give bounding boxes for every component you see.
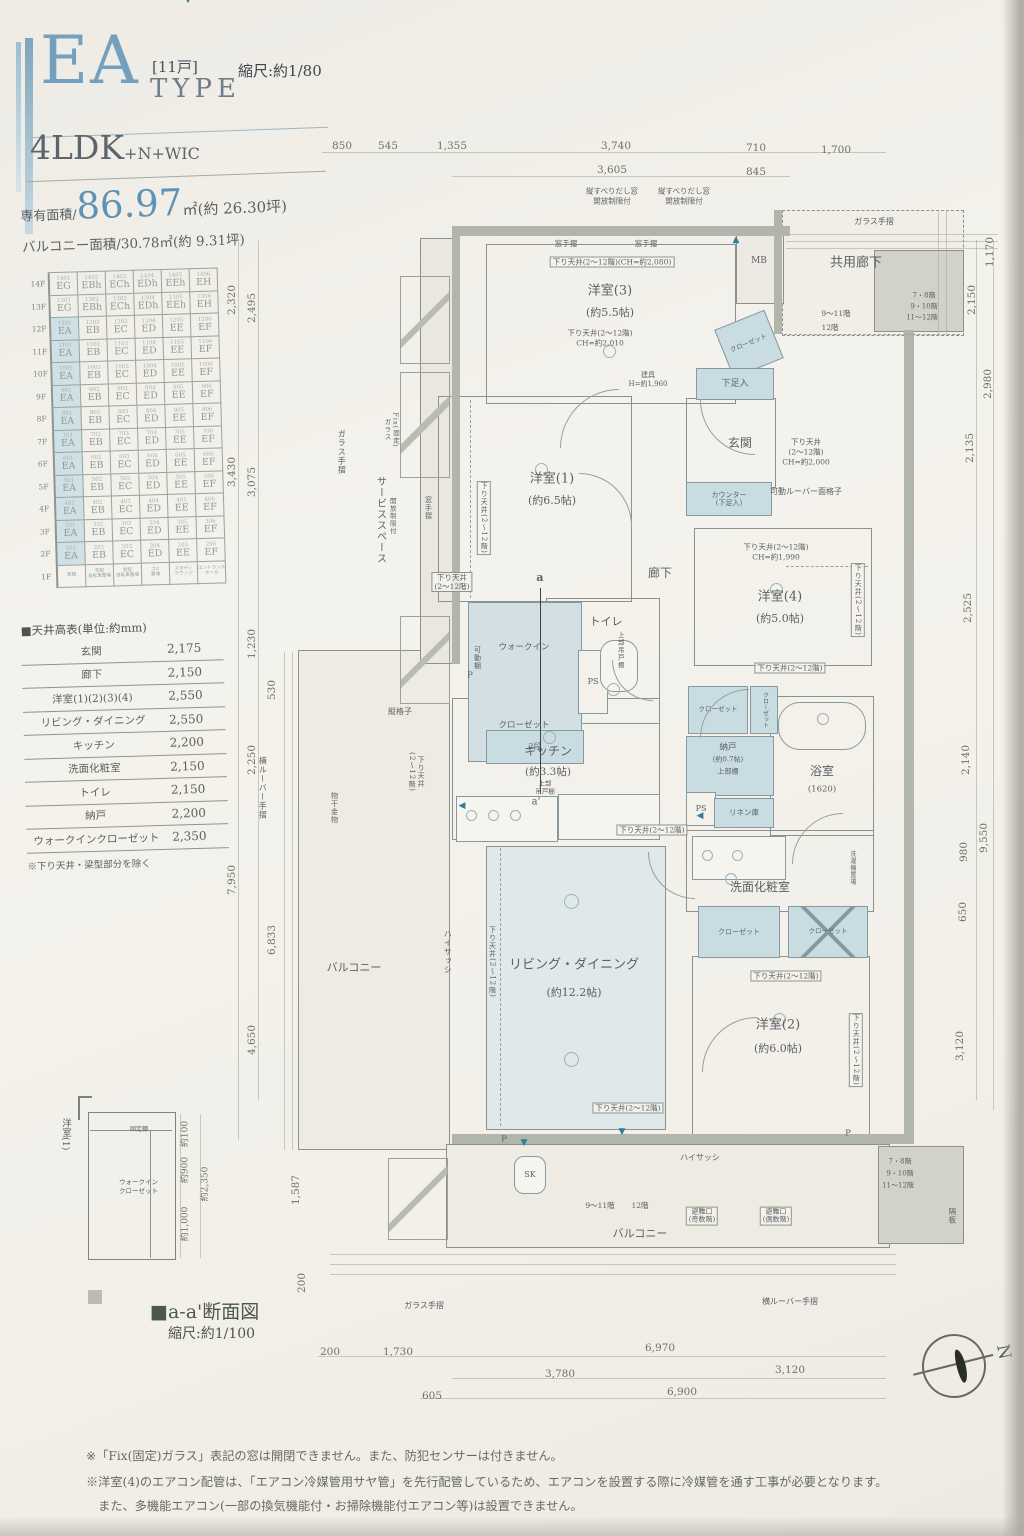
- plan-label: 9〜11階: [585, 1201, 614, 1211]
- plan-fixture: [778, 702, 866, 750]
- plan-label: 下り天井 (2〜12階) CH=約2,000: [782, 437, 830, 466]
- plan-label: キッチン: [524, 744, 572, 760]
- plan-label: ハイサッシ: [442, 930, 452, 975]
- page-edge-shadow: [0, 1516, 1024, 1536]
- plan-fixture: リネン庫: [714, 798, 774, 828]
- dimension-label: 3,430: [226, 457, 238, 487]
- section-line: [540, 588, 541, 794]
- hatched-box: [400, 372, 450, 478]
- dimension-label: 2,150: [966, 285, 978, 315]
- plan-label: P: [467, 670, 473, 681]
- dimension-line: [258, 240, 259, 1100]
- dimension-label: 2,525: [962, 593, 974, 623]
- plan-label: 洋室(2): [756, 1018, 800, 1035]
- section-dim-line: [180, 1114, 181, 1258]
- section-caption: ■a-a'断面図: [150, 1297, 259, 1324]
- plan-label: 避難口 (奇数階): [686, 1207, 718, 1226]
- plan-label: 窓手摺: [555, 239, 578, 249]
- downlight-circle: [543, 731, 556, 744]
- plan-label: 洋室(3): [588, 284, 632, 301]
- dropped-ceiling-line: [500, 848, 501, 1126]
- downlight-circle: [488, 810, 499, 821]
- plan-label: 縦格子: [388, 707, 412, 717]
- plan-label: リビング・ダイニング: [509, 958, 639, 975]
- section-caption-square: [88, 1290, 102, 1304]
- hatched-box: [388, 1158, 448, 1240]
- plan-label: ガラス手摺: [854, 217, 894, 227]
- dimension-label: 1,730: [383, 1346, 413, 1358]
- plan-label: 開放制限付: [388, 497, 396, 535]
- plan-label: ハイサッシ: [680, 1153, 720, 1163]
- plan-label: 7・8階: [913, 291, 936, 300]
- plan-label: 縦すべりだし窓 開放制限付: [658, 186, 710, 206]
- dimension-label: 1,230: [246, 629, 258, 659]
- dimension-line: [938, 210, 939, 336]
- section-shelf-label: 固定棚: [130, 1124, 148, 1133]
- dimension-label: 200: [320, 1346, 340, 1358]
- downlight-circle: [607, 683, 620, 696]
- utility-marker: ▼: [185, 0, 192, 5]
- hatched-box: [400, 276, 450, 364]
- plan-label: 上部 吊戸棚: [535, 780, 555, 797]
- dimension-label: 845: [746, 166, 766, 178]
- dimension-label: 3,120: [954, 1031, 966, 1061]
- footnote-1: ※「Fix(固定)ガラス」表記の窓は開閉できません。また、防犯センサーは付きませ…: [86, 1446, 563, 1464]
- dimension-label: 850: [332, 140, 352, 152]
- utility-marker: ▼: [521, 1138, 528, 1148]
- section-room-label: 洋室(1): [58, 1118, 72, 1150]
- downlight-circle: [564, 1052, 579, 1067]
- plan-label: 洗濯機置場: [848, 851, 856, 886]
- plan-label: 下り天井(2〜12階): [851, 563, 865, 637]
- utility-marker: ◀: [459, 801, 466, 811]
- dimension-line: [284, 652, 285, 1150]
- downlight-circle: [564, 894, 579, 909]
- plan-fixture: クローゼット: [788, 906, 868, 958]
- plan-wall: [904, 330, 914, 1144]
- plan-label: 下り天井(2〜12階)(CH=約2,080): [550, 257, 675, 268]
- plan-label: 9・10階: [910, 302, 937, 311]
- dimension-label: 2,320: [226, 285, 238, 315]
- plan-fixture: 下足入: [696, 368, 774, 400]
- plan-label: (約12.2帖): [546, 986, 601, 1000]
- plan-label: P: [501, 1134, 507, 1145]
- section-dim-line: [200, 1114, 201, 1258]
- dimension-line: [976, 240, 977, 1100]
- plan-wall: [774, 210, 782, 334]
- plan-label: 下り天井(2〜12階): [750, 971, 821, 982]
- dimension-label: 6,900: [667, 1386, 697, 1398]
- dimension-label: 3,075: [246, 467, 258, 497]
- plan-room: [298, 650, 450, 1150]
- plan-fixture: クローゼット: [698, 906, 780, 958]
- plan-label: バルコニー: [613, 1227, 668, 1241]
- plan-label: 窓手摺: [423, 496, 432, 520]
- footnote-2: ※洋室(4)のエアコン配管は、「エアコン冷媒管用サヤ管」を先行配管しているため、…: [86, 1472, 887, 1490]
- plan-label: (約5.5帖): [586, 306, 634, 320]
- dimension-line: [330, 1274, 896, 1275]
- dimension-line: [786, 241, 998, 242]
- plan-label: 下り天井(2〜12階): [487, 926, 496, 998]
- plan-wall: [452, 226, 460, 664]
- plan-label: ウォークイン: [498, 642, 549, 653]
- dimension-line: [330, 1264, 896, 1265]
- downlight-circle: [510, 810, 521, 821]
- plan-label: 7・8階: [889, 1157, 912, 1166]
- dimension-label: 200: [296, 1273, 308, 1293]
- plan-label: a: [536, 571, 543, 585]
- plan-label: 上部棚: [718, 767, 739, 776]
- dimension-label: 6,833: [266, 925, 278, 955]
- dimension-label: 3,780: [545, 1368, 575, 1380]
- dimension-label: 2,495: [246, 293, 258, 323]
- plan-label: 上部吊戸棚: [616, 631, 624, 669]
- plan-label: 下り天井(2〜12階): [592, 1103, 663, 1114]
- plan-label: 下り天井 (2〜12階): [407, 752, 425, 792]
- plan-label: (約5.0帖): [756, 612, 804, 626]
- plan-label: 9〜11階: [821, 309, 850, 319]
- plan-label: 下り天井(2〜12階): [477, 481, 491, 555]
- dimension-label: 7,950: [226, 865, 238, 895]
- dimension-label: 545: [378, 140, 398, 152]
- plan-label: 隔板: [947, 1208, 957, 1225]
- plan-label: ガラス手摺: [336, 430, 346, 475]
- dimension-line: [322, 152, 886, 153]
- dimension-label: 2,250: [246, 745, 258, 775]
- plan-label: 下り天井(2〜12階) CH=約2,010: [567, 328, 632, 348]
- plan-label: 玄関: [728, 436, 752, 452]
- dimension-line: [786, 248, 998, 249]
- plan-label: (1620): [808, 784, 836, 795]
- plan-label: 廊下: [648, 566, 672, 582]
- plan-label: (約0.7帖): [713, 755, 744, 764]
- section-wic-label: ウォークイン クローゼット: [119, 1178, 158, 1196]
- plan-label: P: [845, 1128, 851, 1139]
- dimension-label: 710: [746, 142, 766, 154]
- downlight-circle: [732, 850, 743, 861]
- dimension-label: 530: [266, 680, 278, 700]
- dropped-ceiling-line: [784, 334, 960, 335]
- dimension-line: [946, 210, 947, 336]
- dimension-label: 650: [957, 902, 969, 922]
- plan-label: トイレ: [590, 615, 623, 629]
- plan-label: 下り天井(2〜12階): [849, 1013, 863, 1087]
- hatched-box: [400, 616, 450, 704]
- plan-label: 納戸: [719, 742, 736, 753]
- plan-label: 11〜12階: [882, 1181, 914, 1190]
- plan-label: 横ルーバー手摺: [762, 1297, 818, 1307]
- dimension-label: 3,740: [601, 140, 631, 152]
- plan-fixture: SK: [514, 1156, 546, 1194]
- dimension-label: 6,970: [645, 1342, 675, 1354]
- plan-label: (約6.0帖): [754, 1042, 802, 1056]
- dimension-label: 980: [958, 842, 970, 862]
- plan-fixture: カウンター (下足入): [686, 482, 772, 516]
- plan-label: 可動棚: [472, 646, 481, 670]
- plan-label: 9・10階: [886, 1169, 913, 1178]
- plan-label: サービススペース: [374, 476, 387, 564]
- plan-label: バルコニー: [327, 961, 382, 975]
- dimension-label: 1,355: [437, 140, 467, 152]
- page-edge-shadow: [1002, 0, 1024, 1536]
- dimension-line: [420, 1398, 886, 1399]
- footnote-3: また、多機能エアコン(一部の換気機能付・お掃除機能付エアコン等)は設置できません…: [86, 1496, 583, 1514]
- plan-label: 12階: [631, 1201, 648, 1211]
- plan-label: 12階: [821, 323, 838, 333]
- dimension-line: [452, 1378, 886, 1379]
- utility-marker: ◀: [697, 811, 704, 821]
- compass-needle: [913, 1354, 993, 1376]
- plan-label: 建具 H=約1,960: [628, 371, 667, 389]
- plan-label: 可動ルーバー面格子: [770, 487, 842, 497]
- dimension-line: [786, 234, 998, 235]
- plan-fixture: クローゼット: [750, 686, 778, 734]
- dimension-label: 1,587: [290, 1175, 302, 1205]
- plan-label: 浴室: [810, 764, 834, 780]
- dimension-label: 2,980: [982, 369, 994, 399]
- downlight-circle: [466, 810, 477, 821]
- utility-marker: ▼: [619, 1127, 626, 1137]
- plan-label: 避難口 (偶数階): [760, 1207, 792, 1226]
- plan-label: ガラス手摺: [404, 1301, 444, 1311]
- dimension-line: [292, 652, 293, 1150]
- plan-label: MB: [751, 256, 767, 268]
- dimension-label: 1,700: [821, 144, 851, 156]
- plan-label: 縦すべりだし窓 開放制限付: [586, 186, 638, 206]
- plan-label: Fix(固定) ガラス: [383, 412, 400, 447]
- dimension-label: 605: [422, 1390, 442, 1402]
- plan-label: 横ルーバー手摺: [257, 757, 267, 820]
- dimension-line: [238, 240, 239, 1140]
- plan-label: クローゼット: [498, 720, 549, 731]
- compass-pointer: [953, 1348, 970, 1383]
- plan-label: 窓手摺: [635, 239, 658, 249]
- plan-label: 下り天井 (2〜12階): [431, 572, 472, 592]
- dimension-line: [330, 1254, 896, 1255]
- plan-label: 11〜12階: [906, 313, 938, 322]
- plan-room: [446, 1144, 890, 1248]
- plan-label: (約3.3帖): [525, 766, 571, 780]
- dimension-label: 3,120: [775, 1364, 805, 1376]
- dimension-label: 3,605: [597, 164, 627, 176]
- dimension-label: 2,140: [960, 745, 972, 775]
- dimension-label: 1,170: [984, 237, 996, 267]
- downlight-circle: [702, 850, 713, 861]
- plan-label: 洗面化粧室: [730, 880, 790, 896]
- dropped-ceiling-line: [470, 400, 471, 598]
- plan-label: 下り天井(2〜12階): [754, 663, 825, 674]
- plan-label: a': [532, 796, 541, 809]
- plan-label: 洋室(4): [758, 590, 802, 607]
- dimension-label: 2,135: [964, 433, 976, 463]
- downlight-circle: [817, 713, 829, 725]
- plan-label: 下り天井(2〜12階) CH=約1,990: [743, 542, 808, 562]
- dimension-label: 9,550: [978, 823, 990, 853]
- dimension-label: 4,650: [246, 1025, 258, 1055]
- utility-marker: ▲: [733, 235, 740, 245]
- plan-label: (約6.5帖): [528, 494, 576, 508]
- plan-label: 物干金物: [329, 792, 338, 824]
- plan-label: 洋室(1): [530, 472, 574, 489]
- plan-label: 下り天井(2〜12階): [616, 825, 687, 836]
- section-scale: 縮尺:約1/100: [168, 1323, 255, 1343]
- dimension-line: [452, 176, 790, 177]
- plan-label: 共用廊下: [830, 256, 882, 273]
